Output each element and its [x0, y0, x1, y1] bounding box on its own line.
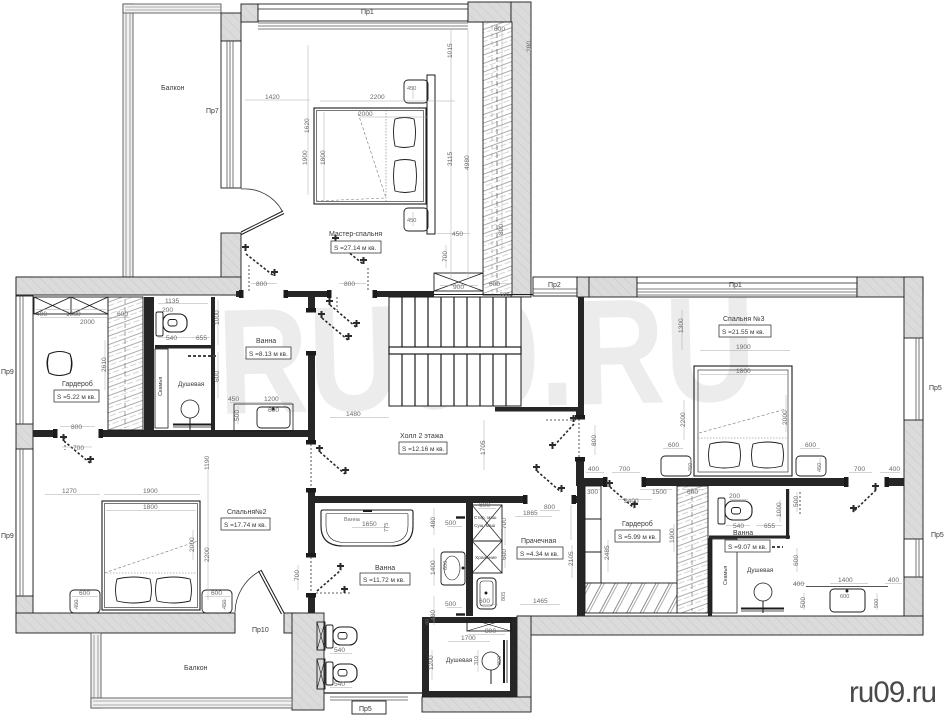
svg-text:3115: 3115 [447, 151, 454, 166]
svg-text:775: 775 [384, 523, 390, 532]
svg-text:700: 700 [854, 466, 865, 473]
svg-text:1700: 1700 [461, 635, 476, 642]
svg-text:600: 600 [479, 598, 490, 605]
svg-text:480: 480 [430, 517, 437, 528]
svg-text:Пр7: Пр7 [206, 108, 219, 115]
svg-text:Ванна: Ванна [375, 565, 395, 572]
svg-text:655: 655 [764, 523, 775, 530]
svg-text:300: 300 [587, 489, 598, 496]
svg-text:400: 400 [889, 466, 900, 473]
svg-text:2000: 2000 [358, 111, 373, 118]
svg-text:1015: 1015 [447, 43, 454, 58]
svg-text:450: 450 [228, 396, 239, 403]
svg-text:Пр1: Пр1 [729, 282, 742, 289]
svg-text:1000: 1000 [214, 310, 221, 325]
svg-text:600: 600 [501, 549, 508, 560]
svg-text:Гардероб: Гардероб [62, 380, 93, 388]
svg-text:ru09.ru: ru09.ru [849, 676, 936, 709]
svg-text:2000: 2000 [782, 410, 789, 425]
svg-text:Холл 2 этажа: Холл 2 этажа [400, 433, 443, 440]
svg-text:S =4.34 м кв.: S =4.34 м кв. [520, 551, 559, 558]
svg-text:Спальня№2: Спальня№2 [227, 509, 267, 516]
svg-text:600: 600 [489, 281, 500, 288]
svg-text:S =12.16 м кв.: S =12.16 м кв. [402, 446, 445, 453]
svg-text:500: 500 [445, 601, 456, 608]
svg-text:600: 600 [494, 26, 505, 33]
svg-text:Суш. маш: Суш. маш [474, 523, 496, 528]
svg-text:480: 480 [430, 610, 437, 621]
svg-text:1865: 1865 [523, 510, 538, 517]
svg-text:1200: 1200 [264, 396, 279, 403]
svg-text:Ванна: Ванна [344, 517, 361, 523]
svg-text:S =8.13 м кв.: S =8.13 м кв. [249, 351, 288, 358]
svg-text:600: 600 [793, 555, 800, 566]
svg-text:Балкон: Балкон [161, 85, 185, 92]
svg-text:540: 540 [334, 647, 345, 654]
svg-text:800: 800 [485, 628, 496, 635]
svg-text:1500: 1500 [652, 489, 667, 496]
svg-text:Балкон: Балкон [184, 665, 208, 672]
svg-text:1420: 1420 [265, 94, 280, 101]
svg-text:540: 540 [334, 681, 345, 688]
svg-text:540: 540 [166, 335, 177, 342]
svg-text:600: 600 [443, 561, 449, 570]
svg-text:2000: 2000 [80, 319, 95, 326]
svg-text:Спальня №3: Спальня №3 [723, 316, 765, 323]
svg-text:1400: 1400 [838, 577, 853, 584]
svg-text:805: 805 [501, 592, 507, 601]
svg-text:200: 200 [729, 493, 740, 500]
svg-text:1190: 1190 [204, 455, 211, 470]
svg-text:1705: 1705 [480, 440, 487, 455]
svg-text:200: 200 [162, 307, 173, 314]
svg-text:450: 450 [74, 600, 80, 609]
svg-text:450: 450 [817, 463, 823, 472]
svg-text:Скамья: Скамья [723, 566, 729, 585]
svg-text:2200: 2200 [370, 94, 385, 101]
svg-text:Ванна: Ванна [733, 530, 753, 537]
svg-text:800: 800 [591, 435, 598, 446]
svg-text:2105: 2105 [568, 551, 575, 566]
svg-text:1900: 1900 [302, 150, 309, 165]
svg-text:1480: 1480 [346, 411, 361, 418]
svg-text:310: 310 [474, 656, 480, 665]
svg-text:2610: 2610 [101, 357, 108, 372]
svg-text:1000: 1000 [776, 502, 783, 517]
svg-text:Скамья: Скамья [158, 377, 164, 396]
svg-text:Стир. маш: Стир. маш [474, 515, 497, 520]
svg-text:2400: 2400 [624, 498, 639, 505]
svg-text:600: 600 [268, 407, 279, 414]
svg-text:800: 800 [498, 224, 505, 235]
svg-text:Хранение: Хранение [475, 555, 497, 561]
svg-text:800: 800 [256, 281, 267, 288]
svg-text:1800: 1800 [736, 368, 751, 375]
svg-text:Пр2: Пр2 [548, 282, 561, 289]
svg-text:S =9.07 м кв.: S =9.07 м кв. [728, 544, 767, 551]
svg-text:450: 450 [452, 231, 463, 238]
svg-text:1300: 1300 [678, 318, 685, 333]
svg-text:600: 600 [211, 590, 222, 597]
svg-text:Ванна: Ванна [256, 338, 276, 345]
svg-text:600: 600 [117, 311, 128, 318]
svg-text:Прачечная: Прачечная [521, 538, 556, 545]
svg-text:400: 400 [888, 577, 899, 584]
svg-text:1650: 1650 [362, 521, 377, 528]
svg-text:Пр5: Пр5 [931, 532, 944, 539]
svg-text:Душевая: Душевая [747, 567, 773, 574]
svg-text:600: 600 [479, 502, 490, 509]
svg-text:600: 600 [79, 590, 90, 597]
svg-text:S =21.55 м кв.: S =21.55 м кв. [722, 329, 765, 336]
svg-text:400: 400 [36, 311, 47, 318]
svg-text:Пр9: Пр9 [1, 533, 14, 540]
svg-text:800: 800 [71, 424, 82, 431]
svg-text:1000: 1000 [66, 311, 81, 318]
svg-text:1270: 1270 [62, 488, 77, 495]
svg-text:500: 500 [234, 410, 241, 421]
svg-text:800: 800 [344, 281, 355, 288]
svg-text:2485: 2485 [604, 545, 611, 560]
svg-text:1400: 1400 [430, 560, 437, 575]
svg-text:Пр10: Пр10 [252, 627, 269, 634]
svg-text:S =5.22 м кв.: S =5.22 м кв. [57, 394, 96, 401]
svg-text:800: 800 [544, 504, 555, 511]
svg-text:500: 500 [874, 599, 880, 608]
svg-text:4980: 4980 [464, 155, 471, 170]
svg-text:450: 450 [407, 86, 416, 92]
svg-text:500: 500 [793, 496, 800, 507]
svg-text:Душевая: Душевая [178, 381, 204, 388]
svg-text:800: 800 [497, 656, 503, 665]
svg-text:700: 700 [501, 518, 508, 529]
svg-text:Мастер-спальня: Мастер-спальня [329, 231, 382, 238]
svg-text:280: 280 [526, 41, 533, 52]
svg-text:450: 450 [407, 218, 416, 224]
svg-text:1465: 1465 [533, 598, 548, 605]
svg-text:540: 540 [733, 523, 744, 530]
svg-text:400: 400 [793, 581, 804, 588]
svg-text:1800: 1800 [320, 150, 327, 165]
svg-text:700: 700 [442, 251, 449, 262]
svg-text:S =17.74 м кв.: S =17.74 м кв. [224, 522, 267, 529]
svg-text:1800: 1800 [143, 504, 158, 511]
svg-text:600: 600 [840, 594, 849, 600]
svg-text:400: 400 [588, 466, 599, 473]
svg-text:1620: 1620 [304, 118, 311, 133]
svg-text:S =27.14 м кв.: S =27.14 м кв. [334, 245, 377, 252]
svg-text:Душевая: Душевая [446, 657, 472, 664]
svg-text:700: 700 [294, 570, 301, 581]
svg-text:2200: 2200 [680, 412, 687, 427]
svg-text:Пр5: Пр5 [929, 385, 942, 392]
svg-text:655: 655 [196, 335, 207, 342]
svg-text:40: 40 [425, 619, 431, 625]
svg-text:700: 700 [73, 445, 84, 452]
svg-text:Пр9: Пр9 [1, 369, 14, 376]
svg-text:600: 600 [805, 442, 816, 449]
svg-text:S =5.99 м кв.: S =5.99 м кв. [618, 534, 657, 541]
svg-text:450: 450 [222, 600, 228, 609]
svg-text:1900: 1900 [669, 528, 676, 543]
svg-text:2200: 2200 [204, 547, 211, 562]
svg-text:1135: 1135 [165, 298, 180, 305]
svg-text:1200: 1200 [428, 655, 435, 670]
svg-text:500: 500 [800, 597, 807, 608]
svg-text:S =11.72 м кв.: S =11.72 м кв. [363, 577, 405, 584]
svg-text:700: 700 [619, 466, 630, 473]
svg-text:1900: 1900 [736, 344, 751, 351]
svg-text:600: 600 [214, 371, 221, 382]
svg-text:600: 600 [500, 292, 509, 298]
svg-text:2000: 2000 [189, 537, 196, 552]
svg-text:Пр5: Пр5 [359, 706, 372, 713]
svg-text:450: 450 [688, 463, 694, 472]
svg-text:600: 600 [668, 442, 679, 449]
svg-text:500: 500 [445, 520, 456, 527]
svg-text:600: 600 [687, 489, 698, 496]
svg-text:Пр1: Пр1 [361, 9, 374, 16]
svg-text:900: 900 [453, 284, 464, 291]
svg-text:1900: 1900 [143, 488, 158, 495]
svg-text:Гардероб: Гардероб [622, 520, 653, 528]
